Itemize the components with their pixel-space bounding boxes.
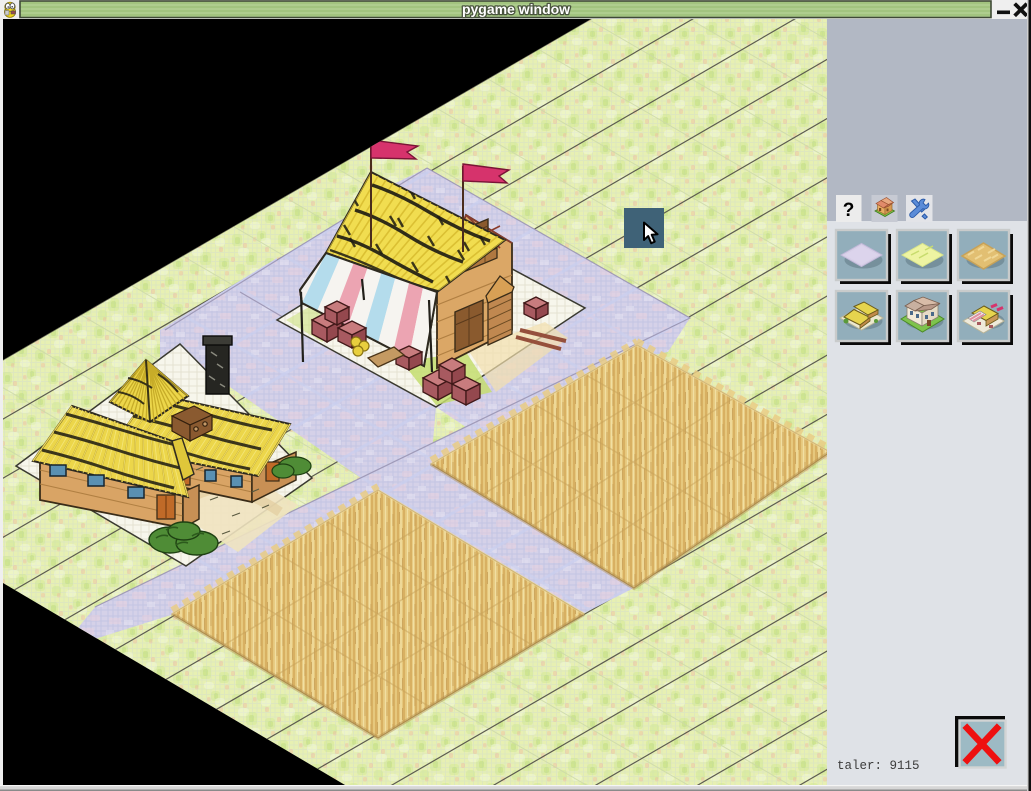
svg-text:taler: 9115: taler: 9115 [837, 759, 920, 773]
svg-text:?: ? [843, 200, 855, 221]
svg-text:pygame window: pygame window [462, 1, 570, 17]
